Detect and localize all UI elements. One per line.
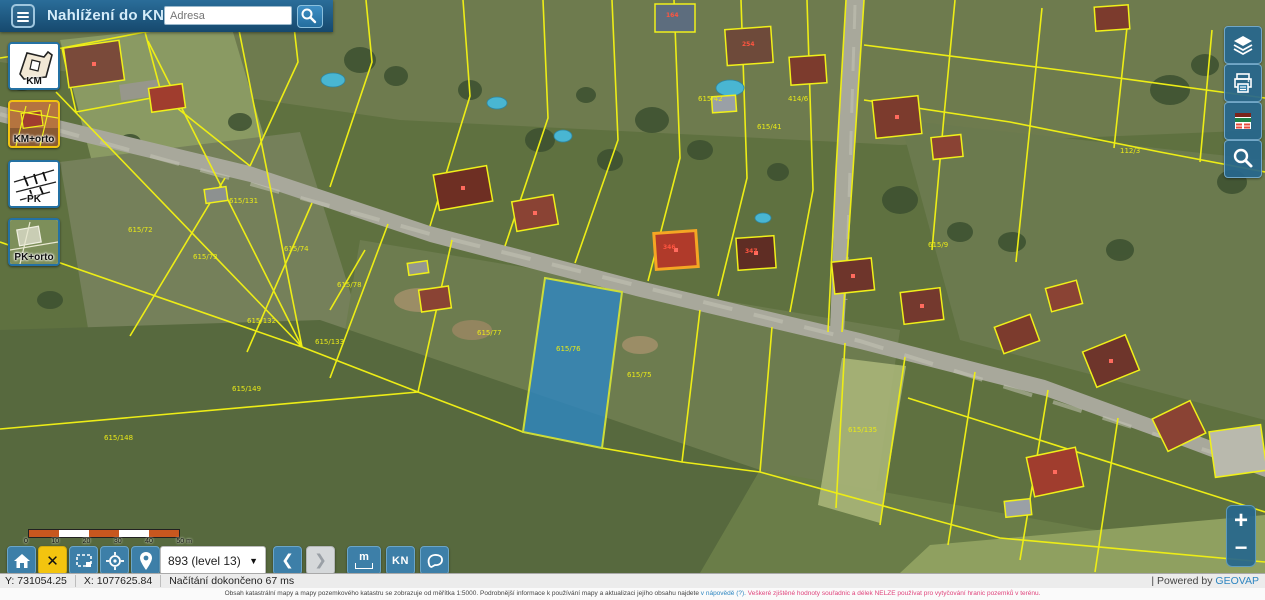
parcel-label: 615/149 (232, 385, 261, 393)
layer-label: KM (10, 76, 58, 87)
parcel-label: 615/132 (247, 317, 276, 325)
layer-button-pk-orto[interactable]: PK+orto (8, 218, 60, 266)
house-label: 346 (663, 244, 676, 251)
history-forward-button[interactable]: ❯ (306, 546, 335, 575)
parcel-label: 615/133 (315, 338, 344, 346)
aerial-map[interactable]: 615/72 615/73 615/74 615/131 615/132 615… (0, 0, 1265, 573)
home-button[interactable] (7, 546, 36, 575)
kn-info-button[interactable]: KN (386, 546, 415, 575)
zoom-level-value: 893 (level 13) (168, 554, 249, 568)
measure-button[interactable]: m (347, 546, 381, 575)
parcel-label: 112/3 (1120, 147, 1140, 155)
scale-bar (28, 529, 180, 538)
app-title: Nahlížení do KN (47, 7, 164, 24)
scale-bar-ticks: 0 10 20 30 40 50 m (24, 538, 192, 545)
parcel-label: 615/41 (757, 123, 782, 131)
coordinate-y: Y: 731054.25 (0, 575, 76, 587)
selection-rectangle-icon (75, 552, 93, 570)
chevron-left-icon: ❮ (281, 553, 294, 568)
chevron-right-icon: ❯ (314, 553, 327, 568)
geovap-link[interactable]: GEOVAP (1215, 575, 1259, 587)
chevron-down-icon: ▼ (249, 556, 258, 566)
rectangle-select-button[interactable] (69, 546, 98, 575)
parcel-label: 615/77 (477, 329, 502, 337)
parcel-info-button[interactable] (420, 546, 449, 575)
layers-icon (1231, 33, 1255, 57)
menu-button[interactable] (11, 4, 35, 28)
ruler-icon (355, 563, 373, 569)
kn-label: KN (392, 555, 409, 567)
powered-by: | Powered by GEOVAP (1145, 575, 1265, 587)
zoom-control: + − (1226, 505, 1256, 567)
print-icon (1231, 71, 1255, 95)
parcel-label: 615/78 (337, 281, 362, 289)
close-icon: ✕ (46, 552, 59, 570)
house-label: 164 (666, 12, 679, 19)
help-link[interactable]: v nápovědě (?). (701, 590, 748, 597)
layer-button-km-orto[interactable]: KM+orto (8, 100, 60, 148)
search-icon (1230, 146, 1256, 172)
parcel-label: 414/6 (788, 95, 809, 103)
parcel-label: 615/72 (128, 226, 153, 234)
legend-icon (1231, 109, 1255, 133)
map-search-button[interactable] (1224, 140, 1262, 178)
measure-label: m (359, 553, 369, 562)
layer-label: PK+orto (10, 252, 58, 263)
scale-unit: m (186, 538, 192, 545)
search-button[interactable] (297, 5, 323, 28)
home-icon (13, 552, 31, 570)
zoom-level-select[interactable]: 893 (level 13) ▼ (160, 546, 266, 575)
history-back-button[interactable]: ❮ (273, 546, 302, 575)
parcel-label: 615/9 (928, 241, 948, 249)
loading-status: Načítání dokončeno 67 ms (161, 575, 302, 587)
parcel-label: 615/75 (627, 371, 652, 379)
marker-button[interactable] (131, 546, 160, 575)
map-pin-icon (137, 551, 155, 571)
print-button[interactable] (1224, 64, 1262, 102)
parcel-outline-icon (425, 552, 445, 570)
disclaimer-bar: Obsah katastrální mapy a mapy pozemkovéh… (0, 588, 1265, 600)
map-viewport[interactable]: 615/72 615/73 615/74 615/131 615/132 615… (0, 0, 1265, 573)
address-search-input[interactable] (164, 6, 292, 25)
zoom-out-button[interactable]: − (1227, 536, 1255, 560)
parcel-label-selected: 615/76 (556, 345, 581, 353)
layer-label: KM+orto (10, 134, 58, 145)
crosshair-icon (105, 551, 125, 571)
house-label: 254 (742, 41, 755, 48)
search-icon (298, 6, 320, 25)
layer-button-km[interactable]: KM (8, 42, 60, 90)
parcel-label: 615/73 (193, 253, 218, 261)
layer-label: PK (10, 194, 58, 205)
hamburger-icon (17, 12, 29, 14)
disclaimer-text: Obsah katastrální mapy a mapy pozemkovéh… (225, 590, 701, 597)
disclaimer-warning: Veškeré zjištěné hodnoty souřadnic a dél… (748, 590, 1041, 597)
cancel-selection-button[interactable]: ✕ (38, 546, 67, 575)
parcel-label: 615/42 (698, 95, 723, 103)
house-label: 347 (745, 248, 758, 255)
parcel-label: 615/135 (848, 426, 877, 434)
locate-button[interactable] (100, 546, 129, 575)
parcel-label: 615/131 (229, 197, 258, 205)
parcel-label: 615/148 (104, 434, 133, 442)
status-bar: Y: 731054.25 X: 1077625.84 Načítání doko… (0, 573, 1265, 588)
zoom-in-button[interactable]: + (1227, 506, 1255, 536)
layer-button-pk[interactable]: PK (8, 160, 60, 208)
legend-button[interactable] (1224, 102, 1262, 140)
layers-button[interactable] (1224, 26, 1262, 64)
parcel-label: 615/74 (284, 245, 309, 253)
coordinate-x: X: 1077625.84 (76, 575, 161, 587)
